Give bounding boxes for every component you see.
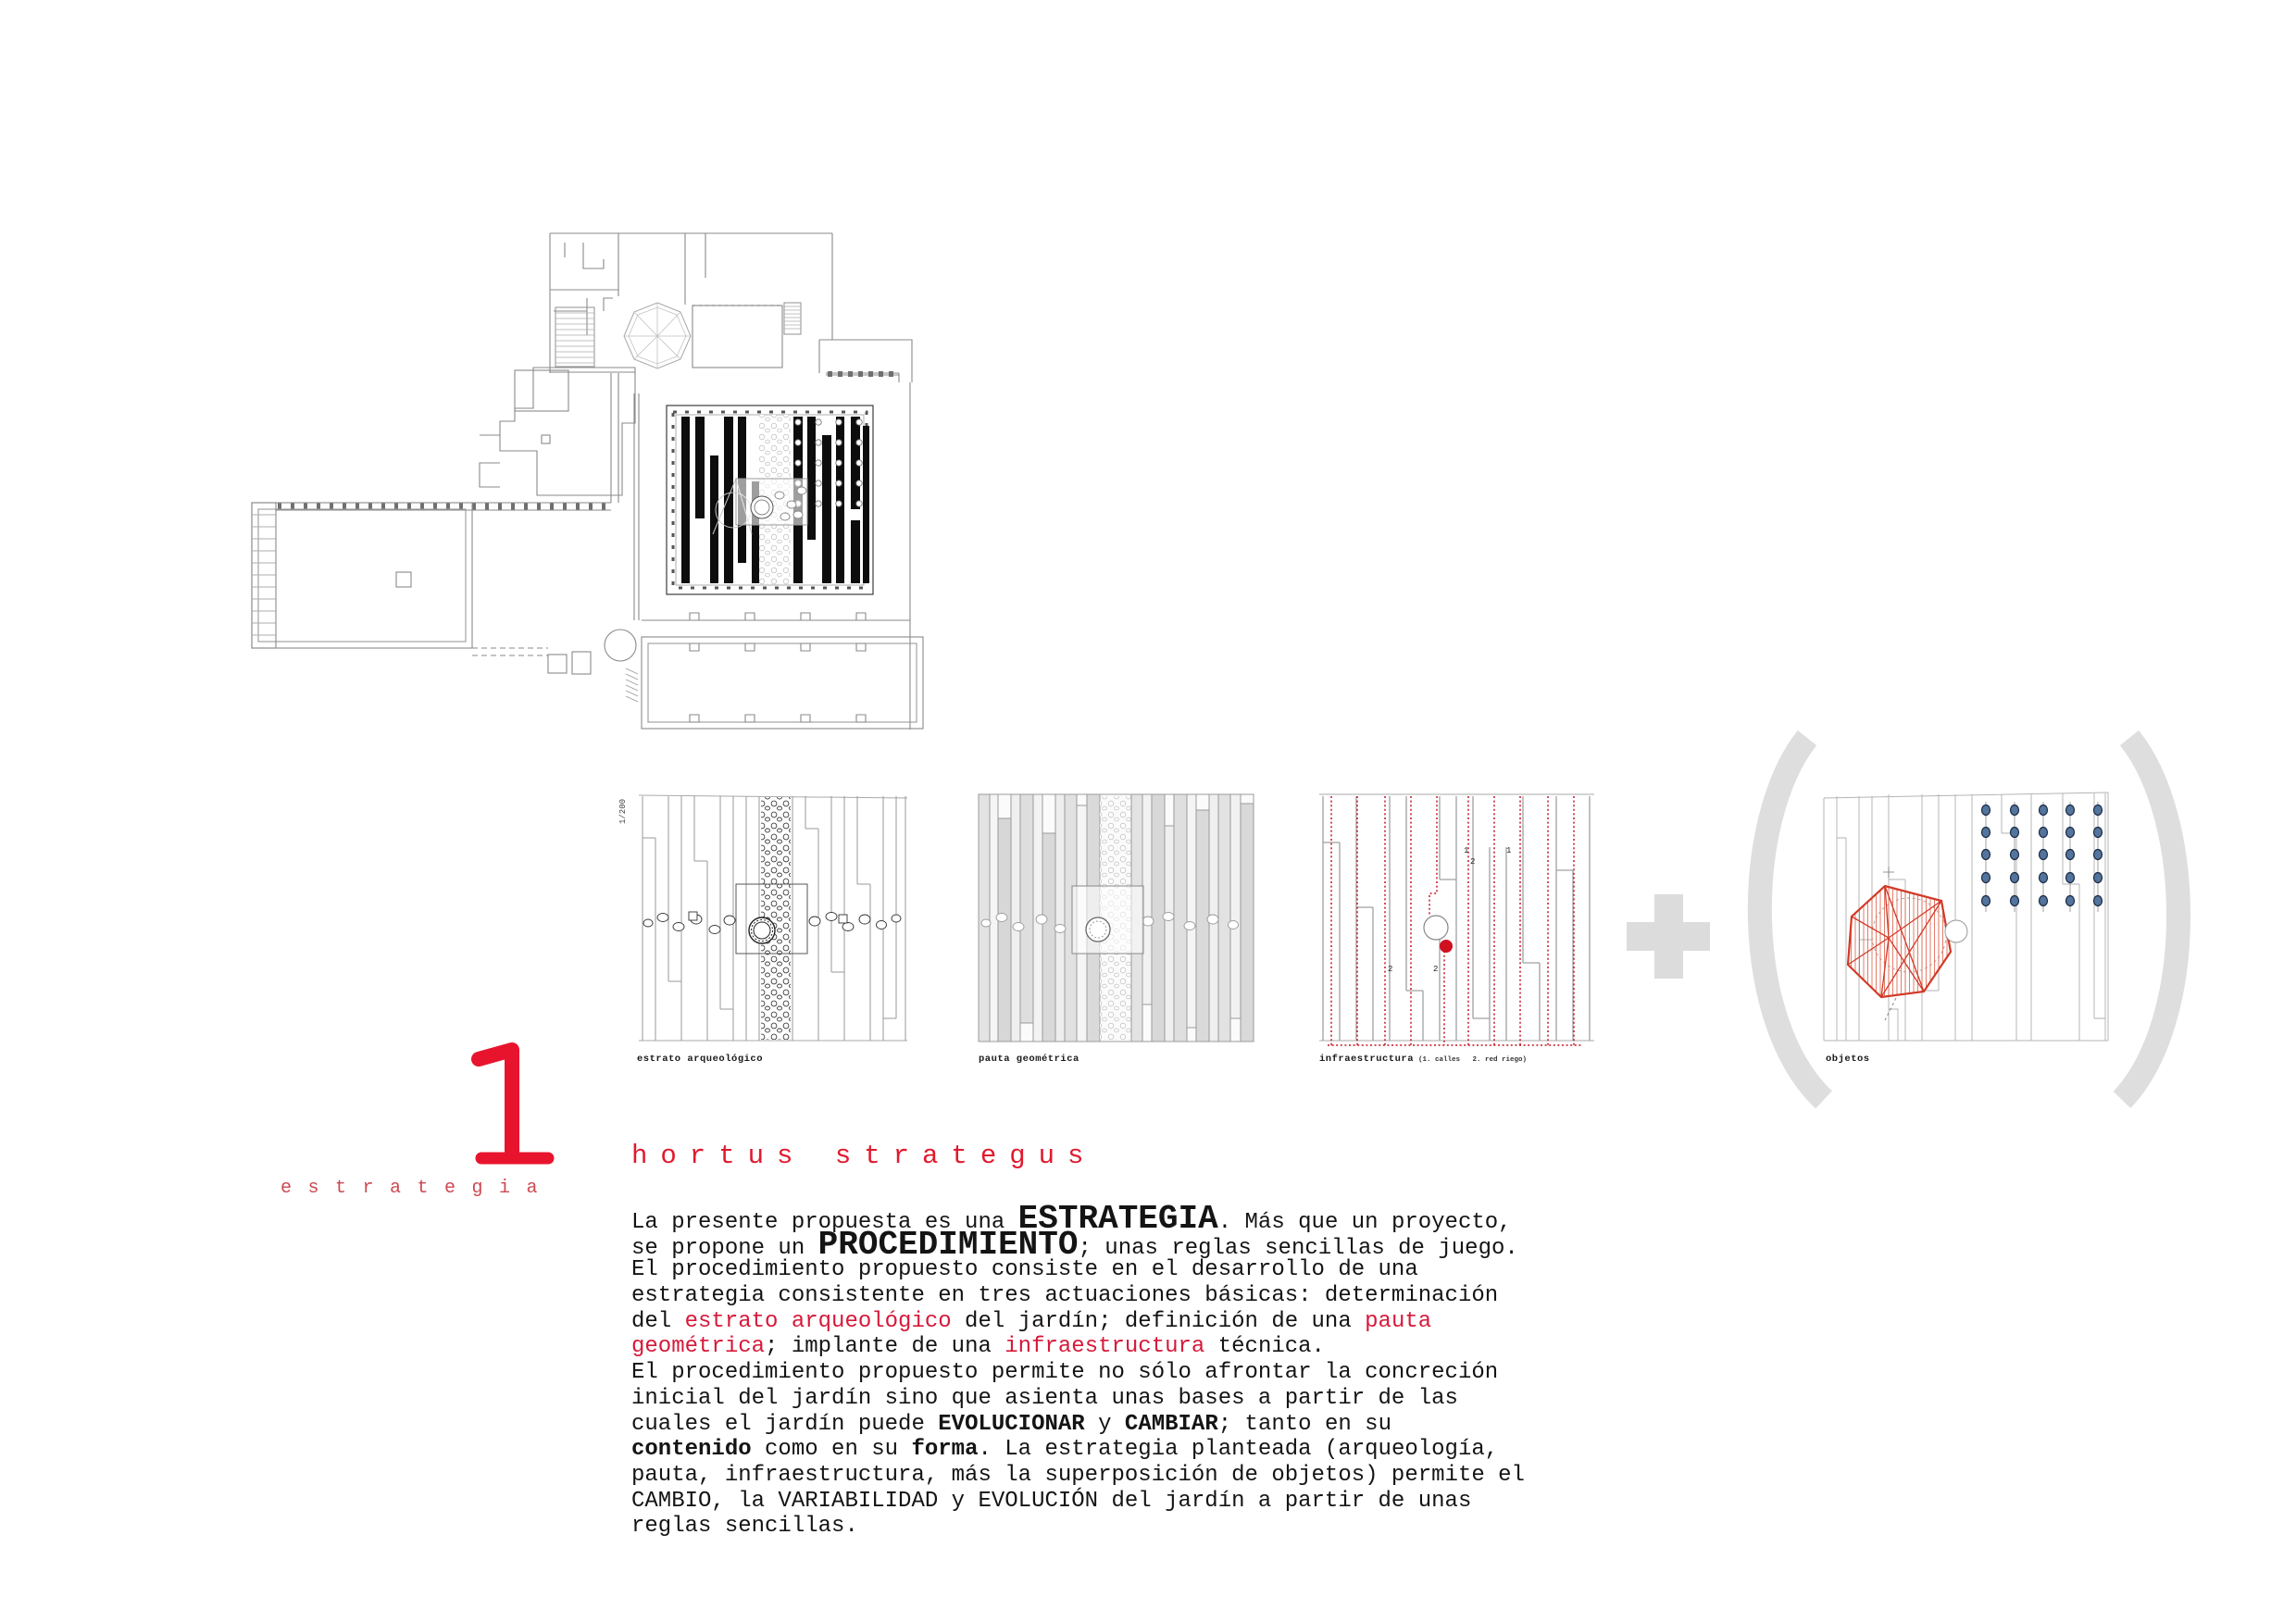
panel-label-infraestructura: infraestructura [1319,1054,1414,1065]
garden-plan [667,405,873,594]
panel-label-pauta: pauta geométrica [979,1054,1079,1065]
panel-estrato-diagram [639,795,907,1041]
red-infra-lines [1328,796,1583,1045]
panel-objetos-diagram [1824,792,2108,1041]
panel-sublabel-infraestructura: (1. calles 2. red riego) [1418,1056,1527,1064]
body-line: inicial del jardín sino que asienta unas… [631,1386,1525,1412]
svg-text:1: 1 [1506,846,1511,855]
svg-text:2: 2 [1388,965,1392,974]
red-node-dot [1440,940,1453,953]
scale-label: 1/200 [618,799,628,824]
body-line: reglas sencillas. [631,1514,1525,1540]
open-paren-icon [1760,738,1824,1100]
red-polyhedron-icon [1848,886,1951,997]
body-line: pauta, infraestructura, más la superposi… [631,1463,1525,1489]
body-line: estrategia consistente en tres actuacion… [631,1283,1525,1309]
panel-label-estrato: estrato arqueológico [637,1054,763,1065]
section-number-glyph [479,1050,548,1158]
body-line: se propone un PROCEDIMIENTO; unas reglas… [631,1232,1525,1258]
presentation-board: 1 2 1 2 2 [0,0,2296,1622]
svg-text:2: 2 [1433,965,1438,974]
body-line: El procedimiento propuesto permite no só… [631,1360,1525,1386]
panel-infraestructura-diagram: 1 2 1 2 2 [1319,794,1594,1045]
close-paren-icon [2122,738,2178,1100]
body-text: La presente propuesta es una ESTRATEGIA.… [631,1206,1525,1540]
body-line: cuales el jardín puede EVOLUCIONAR y CAM… [631,1412,1525,1438]
page-title: hortus strategus [631,1141,1096,1171]
fountain-circle [605,630,636,661]
body-line: contenido como en su forma. La estrategi… [631,1437,1525,1463]
panel-pauta-diagram [979,794,1254,1042]
ring-icon [749,917,775,943]
object-dot-grid [1982,805,2103,906]
body-line: del estrato arqueológico del jardín; def… [631,1309,1525,1335]
svg-text:2: 2 [1470,857,1475,867]
body-line: geométrica; implante de una infraestruct… [631,1334,1525,1360]
body-line: El procedimiento propuesto consiste en e… [631,1257,1525,1283]
svg-text:1: 1 [1464,846,1468,855]
panel-label-objetos: objetos [1826,1054,1870,1065]
body-line: CAMBIO, la VARIABILIDAD y EVOLUCIÓN del … [631,1489,1525,1515]
section-name: estrategia [281,1178,554,1199]
small-circle [1945,920,1967,942]
plus-icon [1627,894,1710,979]
ring-icon [1086,917,1110,942]
octagon-tower-icon [624,303,691,368]
